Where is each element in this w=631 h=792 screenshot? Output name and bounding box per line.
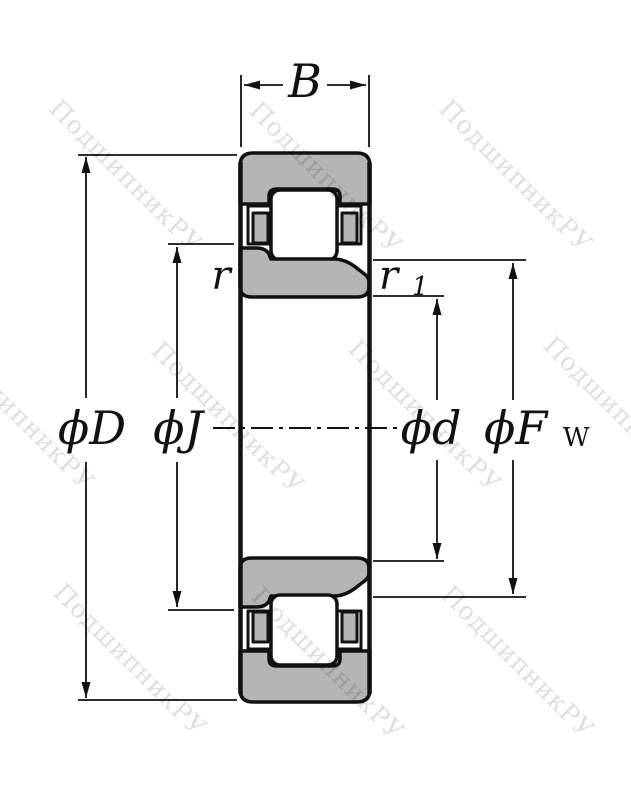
arrowhead-down	[82, 682, 91, 698]
arrowhead-down	[433, 543, 442, 559]
watermark-text: ПодшипникРУ	[436, 580, 601, 745]
arrowhead-up	[433, 299, 442, 315]
arrowhead-down	[509, 578, 518, 594]
bearing-drawing-canvas: B ϕD ϕJ ϕd ϕF	[0, 0, 631, 792]
watermark-text: ПодшипникРУ	[434, 94, 599, 259]
label-phi-F-subscript: W	[563, 423, 590, 453]
arrowhead-left	[244, 81, 260, 90]
cage-bar-top-left	[253, 213, 268, 243]
label-phi-Fw: ϕF W	[484, 401, 590, 455]
watermark-text: ПодшипникРУ	[44, 94, 209, 259]
label-phi-F-main: ϕF	[484, 401, 549, 455]
watermark-text: ПодшипникРУ	[48, 578, 213, 743]
label-r1-subscript: 1	[412, 272, 429, 302]
roller-top	[271, 190, 337, 260]
arrowhead-up	[509, 263, 518, 279]
label-phi-J: ϕJ	[153, 401, 205, 455]
cage-bar-bottom-right	[342, 612, 357, 642]
bearing-cross-section-diagram: B ϕD ϕJ ϕd ϕF	[0, 0, 631, 792]
label-r1-main: r	[379, 253, 401, 299]
label-width-B: B	[287, 54, 322, 108]
label-chamfer-r: r	[211, 253, 233, 299]
arrowhead-right	[350, 81, 366, 90]
arrowhead-down	[173, 591, 182, 607]
